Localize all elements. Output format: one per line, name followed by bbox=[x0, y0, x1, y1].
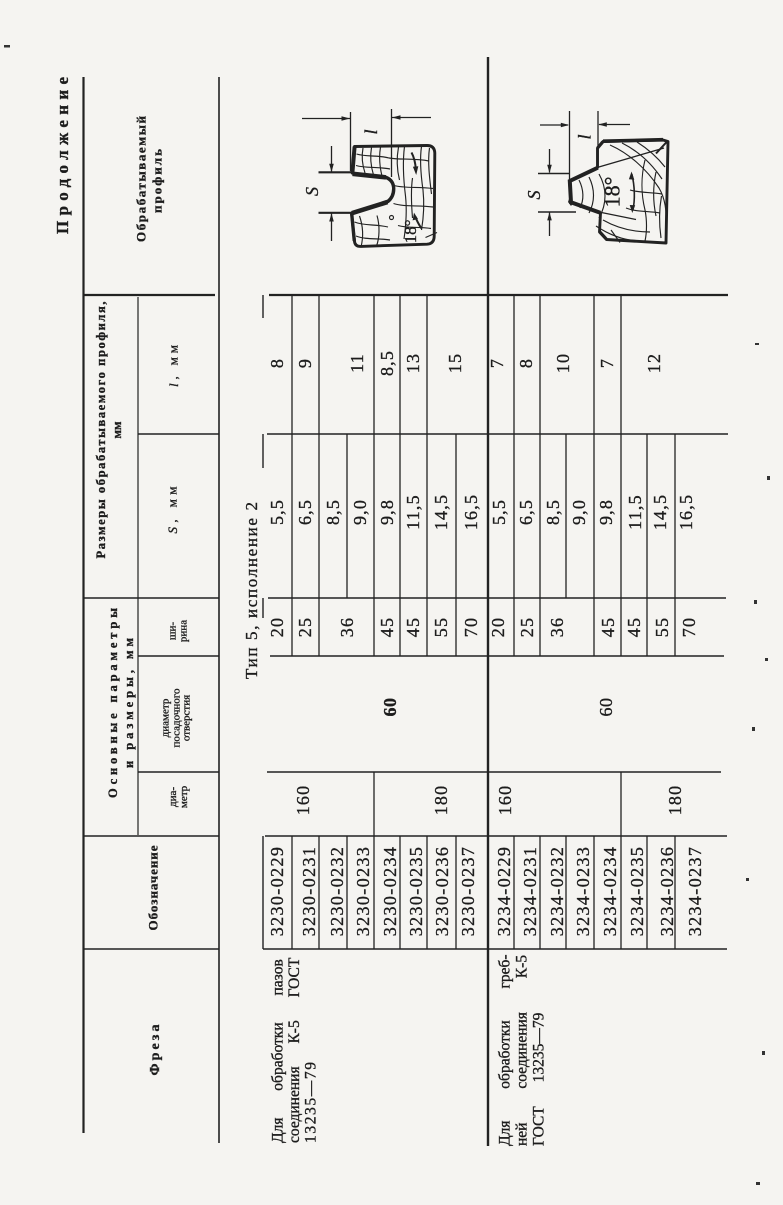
svg-text:55: 55 bbox=[431, 617, 451, 637]
svg-text:9,0: 9,0 bbox=[569, 499, 589, 525]
svg-text:60: 60 bbox=[596, 698, 616, 717]
svg-text:180: 180 bbox=[665, 785, 685, 816]
svg-text:18°: 18° bbox=[401, 220, 420, 244]
svg-text:Для обработки греб-: Для обработки греб- bbox=[497, 954, 514, 1146]
svg-text:8: 8 bbox=[267, 358, 287, 368]
svg-text:3234-0229: 3234-0229 bbox=[494, 846, 514, 937]
svg-text:мм: мм bbox=[110, 421, 124, 439]
svg-text:профиль: профиль bbox=[150, 149, 165, 213]
svg-text:8,5: 8,5 bbox=[323, 499, 343, 525]
svg-text:36: 36 bbox=[547, 617, 567, 637]
svg-text:6,5: 6,5 bbox=[516, 499, 536, 525]
svg-text:45: 45 bbox=[377, 617, 397, 637]
svg-text:3230-0234: 3230-0234 bbox=[380, 846, 400, 937]
svg-text:7: 7 bbox=[597, 358, 617, 368]
svg-text:6,5: 6,5 bbox=[295, 499, 315, 525]
svg-text:3234-0234: 3234-0234 bbox=[600, 846, 620, 937]
svg-text:70: 70 bbox=[679, 617, 699, 637]
svg-text:70: 70 bbox=[461, 617, 481, 637]
svg-text:16,5: 16,5 bbox=[461, 494, 481, 530]
svg-text:14,5: 14,5 bbox=[650, 494, 670, 530]
svg-text:9,8: 9,8 bbox=[596, 499, 616, 525]
svg-text:Обрабатываемый: Обрабатываемый bbox=[134, 116, 149, 243]
svg-text:3230-0236: 3230-0236 bbox=[432, 846, 452, 937]
svg-text:3230-0235: 3230-0235 bbox=[406, 846, 426, 937]
svg-text:Основные параметры: Основные параметры bbox=[106, 608, 120, 798]
svg-text:11,5: 11,5 bbox=[403, 494, 423, 530]
svg-text:10: 10 bbox=[553, 353, 573, 373]
svg-text:ней соединения К-5: ней соединения К-5 bbox=[514, 955, 531, 1146]
svg-text:S: S bbox=[524, 191, 544, 200]
svg-text:рина: рина bbox=[178, 620, 190, 642]
svg-text:3234-0233: 3234-0233 bbox=[573, 846, 593, 937]
svg-text:3234-0231: 3234-0231 bbox=[520, 846, 540, 937]
svg-text:8,5: 8,5 bbox=[377, 350, 397, 376]
svg-text:3230-0232: 3230-0232 bbox=[327, 846, 347, 937]
svg-text:13235—79: 13235—79 bbox=[303, 1060, 320, 1143]
svg-text:14,5: 14,5 bbox=[431, 494, 451, 530]
svg-text:l: l bbox=[575, 134, 595, 139]
svg-text:S: S bbox=[302, 187, 322, 196]
svg-text:3234-0235: 3234-0235 bbox=[627, 846, 647, 937]
svg-text:18°: 18° bbox=[600, 177, 625, 208]
svg-text:55: 55 bbox=[652, 617, 672, 637]
svg-text:20: 20 bbox=[488, 617, 508, 637]
svg-text:5,5: 5,5 bbox=[489, 499, 509, 525]
svg-text:15: 15 bbox=[445, 353, 465, 373]
svg-text:8,5: 8,5 bbox=[543, 499, 563, 525]
svg-text:3234-0237: 3234-0237 bbox=[685, 846, 705, 937]
svg-text:11: 11 bbox=[347, 353, 367, 373]
svg-text:180: 180 bbox=[431, 785, 451, 816]
svg-text:Размеры обрабатываемого профил: Размеры обрабатываемого профиля, bbox=[94, 302, 108, 559]
svg-text:8: 8 bbox=[516, 358, 536, 368]
svg-text:45: 45 bbox=[598, 617, 618, 637]
svg-text:и размеры, мм: и размеры, мм bbox=[122, 638, 136, 768]
svg-text:3230-0229: 3230-0229 bbox=[267, 846, 287, 937]
svg-text:25: 25 bbox=[517, 617, 537, 637]
svg-text:160: 160 bbox=[495, 785, 515, 816]
svg-text:S, мм: S, мм bbox=[165, 487, 180, 534]
svg-text:3230-0237: 3230-0237 bbox=[458, 846, 478, 937]
svg-text:3230-0231: 3230-0231 bbox=[299, 846, 319, 937]
svg-text:7: 7 bbox=[487, 358, 507, 368]
svg-text:16,5: 16,5 bbox=[676, 494, 696, 530]
svg-text:9,0: 9,0 bbox=[350, 499, 370, 525]
svg-text:160: 160 bbox=[293, 785, 313, 816]
svg-text:Фреза: Фреза bbox=[148, 1025, 163, 1076]
svg-text:l, мм: l, мм bbox=[166, 345, 181, 387]
svg-text:36: 36 bbox=[337, 617, 357, 637]
svg-text:5,5: 5,5 bbox=[267, 499, 287, 525]
svg-text:метр: метр bbox=[178, 785, 190, 808]
svg-text:3234-0232: 3234-0232 bbox=[547, 846, 567, 937]
svg-text:45: 45 bbox=[624, 617, 644, 637]
svg-text:отверстия: отверстия bbox=[181, 695, 193, 741]
svg-text:3234-0236: 3234-0236 bbox=[657, 846, 677, 937]
svg-text:45: 45 bbox=[403, 617, 423, 637]
svg-text:соединения К-5 ГОСТ: соединения К-5 ГОСТ bbox=[286, 957, 303, 1143]
svg-text:Продолжение: Продолжение bbox=[53, 77, 72, 234]
svg-text:3230-0233: 3230-0233 bbox=[353, 846, 373, 937]
svg-text:Обозначение: Обозначение bbox=[146, 845, 161, 930]
svg-text:ГОСТ 13235—79: ГОСТ 13235—79 bbox=[531, 1012, 548, 1146]
svg-text:Для обработки пазов: Для обработки пазов bbox=[270, 959, 287, 1143]
svg-text:11,5: 11,5 bbox=[625, 494, 645, 530]
svg-text:25: 25 bbox=[295, 617, 315, 637]
svg-text:20: 20 bbox=[267, 617, 287, 637]
svg-text:12: 12 bbox=[644, 353, 664, 373]
svg-text:9,8: 9,8 bbox=[377, 499, 397, 525]
svg-text:Тип 5, исполнение 2: Тип 5, исполнение 2 bbox=[242, 502, 261, 679]
svg-text:60: 60 bbox=[380, 698, 400, 717]
svg-text:l: l bbox=[361, 129, 381, 134]
svg-text:13: 13 bbox=[403, 353, 423, 373]
svg-text:9: 9 bbox=[295, 358, 315, 368]
